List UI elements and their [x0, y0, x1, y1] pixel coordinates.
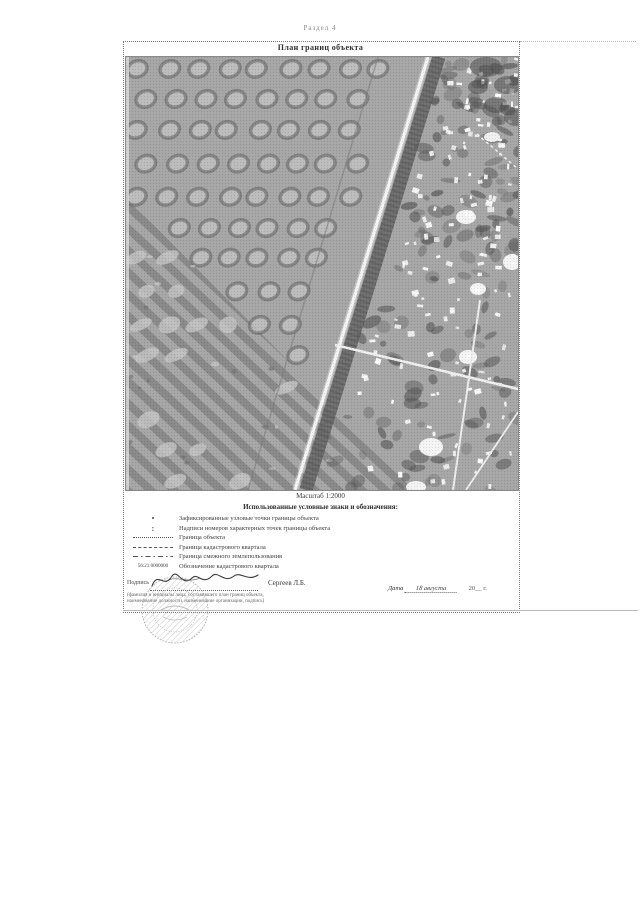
legend-item: Граница объекта	[127, 533, 507, 543]
legend-item: Граница кадастрового квартала	[127, 543, 507, 553]
legend-symbol-point: •	[127, 516, 179, 522]
legend-item-label: Граница кадастрового квартала	[179, 544, 507, 551]
date-block: Дата 18 августа 20__ г.	[388, 585, 487, 593]
legend-heading: Использованные условные знаки и обозначе…	[123, 503, 518, 511]
bottom-rule	[123, 610, 638, 611]
page-header: Раздел 4	[0, 24, 640, 32]
top-dotted-line-extension	[520, 41, 636, 42]
map-scale-label: Масштаб 1:2000	[123, 492, 518, 500]
legend-symbol-dotted-line	[127, 537, 179, 538]
legend-item-label: Зафиксированные узловые точки границы об…	[179, 515, 507, 522]
legend-item-label: Надписи номеров характерных точек границ…	[179, 525, 507, 532]
scanned-document-page: Раздел 4 План границ объекта Масштаб 1:2…	[0, 0, 640, 905]
signer-name: Сергеев Л.Б.	[268, 579, 306, 587]
aerial-photo-graphic	[126, 57, 518, 490]
plan-title: План границ объекта	[123, 43, 518, 52]
legend-symbol-dashdot-line	[127, 556, 179, 557]
legend-symbol-dashed-line	[127, 547, 179, 548]
legend-item-label: Граница смежного землепользования	[179, 553, 507, 560]
legend-item: Граница смежного землепользования	[127, 552, 507, 562]
legend-item-label: Граница объекта	[179, 534, 507, 541]
aerial-photo	[126, 57, 518, 490]
legend-symbol-colon: :	[127, 524, 179, 533]
legend-item: •Зафиксированные узловые точки границы о…	[127, 514, 507, 524]
date-year-suffix: 20__ г.	[469, 585, 487, 592]
date-handwritten: 18 августа	[405, 585, 458, 593]
date-label: Дата	[388, 585, 403, 592]
legend: •Зафиксированные узловые точки границы о…	[127, 514, 507, 571]
legend-item: :Надписи номеров характерных точек грани…	[127, 524, 507, 534]
